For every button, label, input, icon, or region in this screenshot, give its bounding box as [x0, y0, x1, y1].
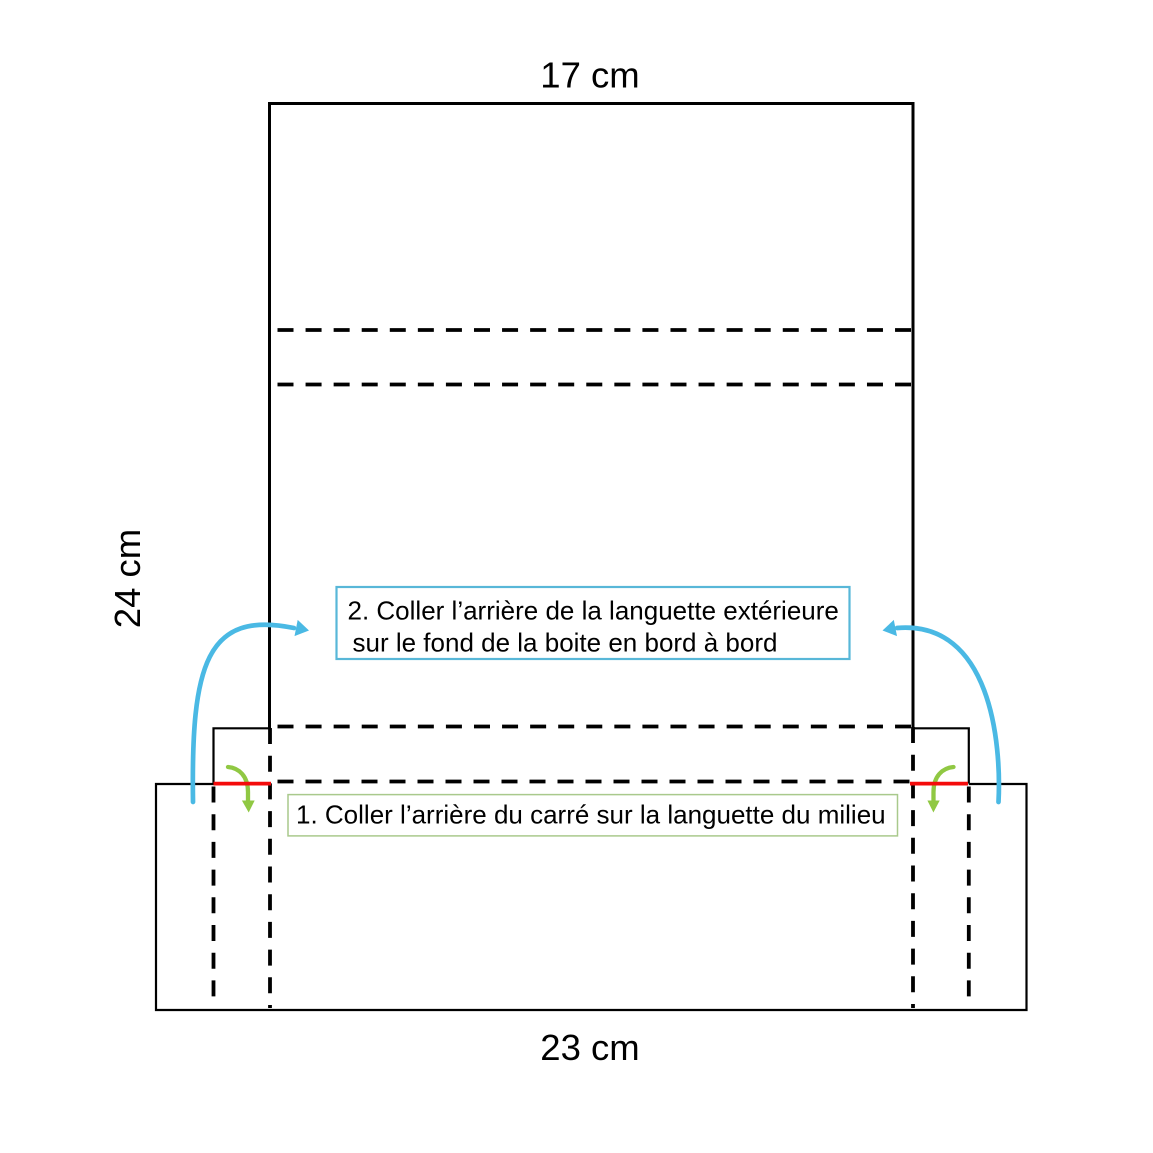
- svg-text:2. Coller l’arrière de la lang: 2. Coller l’arrière de la languette exté…: [348, 596, 839, 626]
- svg-text:17 cm: 17 cm: [540, 55, 639, 96]
- svg-text:23 cm: 23 cm: [540, 1027, 639, 1068]
- svg-text:1. Coller l’arrière du carré s: 1. Coller l’arrière du carré sur la lang…: [296, 799, 886, 829]
- svg-text:24 cm: 24 cm: [107, 529, 148, 628]
- svg-text:sur le fond de la boite en bor: sur le fond de la boite en bord à bord: [353, 628, 778, 658]
